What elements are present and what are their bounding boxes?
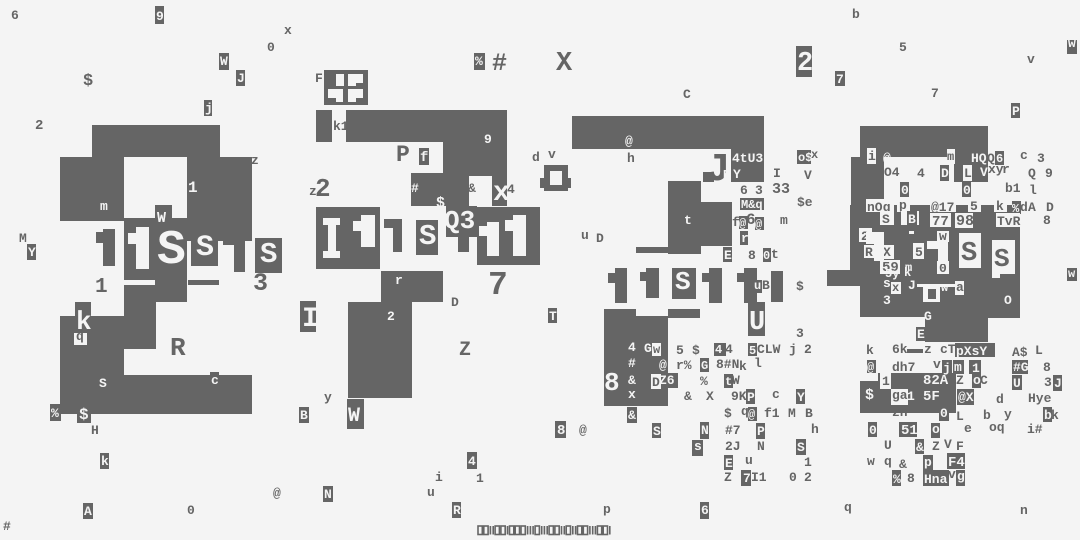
svg-text:%: % xyxy=(893,472,901,487)
svg-text:u: u xyxy=(745,453,753,468)
svg-text:E: E xyxy=(917,327,925,342)
svg-text:i: i xyxy=(868,149,876,164)
svg-text:w: w xyxy=(1068,267,1076,281)
svg-text:q: q xyxy=(844,500,852,515)
svg-text:W: W xyxy=(348,405,360,428)
svg-text:x: x xyxy=(628,387,636,402)
svg-text:x: x xyxy=(284,23,292,38)
svg-text:E: E xyxy=(724,248,732,263)
svg-text:y: y xyxy=(324,390,332,405)
svg-text:1: 1 xyxy=(882,374,890,389)
svg-text:$e: $e xyxy=(797,195,813,210)
svg-text:r: r xyxy=(395,273,403,288)
svg-text:0: 0 xyxy=(267,40,275,55)
svg-text:C: C xyxy=(980,373,988,388)
svg-text:2: 2 xyxy=(387,309,395,324)
svg-text:F: F xyxy=(956,439,964,454)
svg-text:t: t xyxy=(684,213,692,228)
svg-text:9: 9 xyxy=(1045,166,1053,181)
svg-text:51: 51 xyxy=(901,423,918,439)
svg-text:v: v xyxy=(948,467,956,482)
svg-text:@: @ xyxy=(625,134,633,149)
svg-text:V: V xyxy=(944,437,952,452)
svg-text:M: M xyxy=(788,406,796,421)
svg-text:u: u xyxy=(581,228,589,243)
svg-text:6k: 6k xyxy=(892,342,908,357)
svg-text:L: L xyxy=(964,166,972,181)
svg-text:#: # xyxy=(411,181,419,196)
svg-text:S: S xyxy=(653,424,661,439)
svg-text:R: R xyxy=(170,333,186,363)
svg-text:@: @ xyxy=(579,423,587,438)
svg-text:@: @ xyxy=(273,486,281,501)
svg-text:v: v xyxy=(1027,52,1035,67)
svg-text:d: d xyxy=(1020,200,1028,215)
svg-text:0: 0 xyxy=(869,423,877,438)
svg-text:%: % xyxy=(475,54,483,69)
svg-text:4: 4 xyxy=(468,454,476,469)
svg-text:M&q: M&q xyxy=(741,198,763,212)
svg-text:e: e xyxy=(964,421,972,436)
svg-text:W: W xyxy=(220,54,228,69)
svg-text:R: R xyxy=(453,503,461,518)
svg-text:R: R xyxy=(865,245,873,260)
svg-text:D: D xyxy=(941,166,949,181)
svg-text:Z: Z xyxy=(932,439,940,454)
svg-text:i#: i# xyxy=(1027,422,1043,437)
svg-text:5: 5 xyxy=(970,199,978,214)
svg-text:6: 6 xyxy=(701,503,709,518)
svg-text:8: 8 xyxy=(604,368,620,398)
svg-text:Z6: Z6 xyxy=(659,373,675,388)
svg-text:3: 3 xyxy=(883,293,891,308)
svg-text:S: S xyxy=(882,212,890,227)
svg-text:9K: 9K xyxy=(731,389,747,404)
svg-text:0: 0 xyxy=(963,183,971,198)
svg-text:3: 3 xyxy=(253,269,268,298)
svg-text:6: 6 xyxy=(740,183,748,198)
svg-text:J: J xyxy=(908,278,916,293)
svg-text:5: 5 xyxy=(915,245,923,260)
svg-text:0: 0 xyxy=(187,503,195,518)
svg-text:H: H xyxy=(91,423,99,438)
svg-text:L: L xyxy=(1035,343,1043,358)
svg-text:@17: @17 xyxy=(931,200,954,215)
svg-text:1: 1 xyxy=(95,276,108,299)
svg-text:&: & xyxy=(899,457,907,472)
svg-text:L: L xyxy=(956,409,964,424)
svg-text:I1: I1 xyxy=(751,470,767,485)
svg-text:5: 5 xyxy=(899,40,907,55)
svg-text:pXsY: pXsY xyxy=(956,344,987,359)
svg-text:S: S xyxy=(419,220,436,253)
svg-text:m: m xyxy=(780,213,788,228)
svg-text:9: 9 xyxy=(484,132,492,147)
svg-text:8: 8 xyxy=(1043,213,1051,228)
svg-text:8: 8 xyxy=(1043,360,1051,375)
svg-text:8#N: 8#N xyxy=(716,357,739,372)
svg-text:b: b xyxy=(852,7,860,22)
svg-text:Y: Y xyxy=(797,390,805,405)
svg-text:c: c xyxy=(1020,148,1028,163)
svg-text:r: r xyxy=(1002,162,1010,177)
svg-text:D: D xyxy=(451,295,459,310)
svg-text:S: S xyxy=(675,267,691,297)
svg-text:k: k xyxy=(996,199,1004,214)
svg-text:oq: oq xyxy=(989,420,1005,435)
svg-text:I: I xyxy=(302,304,319,335)
svg-text:0: 0 xyxy=(789,470,797,485)
svg-text:S: S xyxy=(157,224,186,278)
svg-text:j: j xyxy=(789,342,797,357)
svg-text:@: @ xyxy=(748,408,755,422)
svg-text:8: 8 xyxy=(557,423,565,439)
svg-text:a: a xyxy=(956,280,964,295)
svg-text:N: N xyxy=(701,423,709,438)
svg-text:2J: 2J xyxy=(725,439,741,454)
svg-text:@: @ xyxy=(883,151,891,166)
svg-text:s: s xyxy=(883,276,891,291)
svg-text:v: v xyxy=(933,357,941,372)
svg-text:$: $ xyxy=(83,72,93,91)
svg-text:g: g xyxy=(957,469,965,484)
svg-text:Y: Y xyxy=(733,167,741,182)
svg-text:u: u xyxy=(427,485,435,500)
svg-text:B: B xyxy=(805,406,813,421)
svg-text:4tU3: 4tU3 xyxy=(732,151,763,166)
svg-text:w: w xyxy=(941,281,949,295)
svg-text:f1: f1 xyxy=(764,406,780,421)
svg-text:2: 2 xyxy=(315,174,331,204)
svg-text:ga: ga xyxy=(892,388,908,403)
svg-text:1: 1 xyxy=(804,455,812,470)
svg-text:$: $ xyxy=(724,406,732,421)
svg-text:Hna: Hna xyxy=(924,472,948,487)
svg-text:P: P xyxy=(1012,104,1020,119)
svg-text:1: 1 xyxy=(188,179,198,197)
svg-text:7: 7 xyxy=(743,471,751,486)
svg-text:HQ: HQ xyxy=(971,151,987,166)
svg-text:#: # xyxy=(492,49,507,78)
svg-text:w: w xyxy=(653,343,661,357)
svg-text:&: & xyxy=(468,181,476,196)
svg-text:Q3: Q3 xyxy=(444,206,475,236)
svg-text:$: $ xyxy=(79,406,89,424)
svg-text:S: S xyxy=(99,376,107,391)
svg-text:S: S xyxy=(961,239,977,269)
svg-text:82A: 82A xyxy=(923,373,949,389)
svg-text:TvR: TvR xyxy=(997,214,1021,229)
svg-text:n: n xyxy=(1020,503,1028,518)
svg-text:B: B xyxy=(300,408,308,423)
svg-text:M: M xyxy=(19,231,27,246)
svg-text:%: % xyxy=(700,374,708,389)
svg-text:U: U xyxy=(1013,376,1021,391)
svg-text:98: 98 xyxy=(956,213,974,230)
svg-text:$: $ xyxy=(865,387,874,404)
svg-text:#: # xyxy=(3,519,11,534)
svg-text:x: x xyxy=(811,148,818,162)
svg-text:U: U xyxy=(749,308,765,338)
svg-text:r: r xyxy=(741,231,749,246)
svg-text:0: 0 xyxy=(940,406,948,421)
svg-text:N: N xyxy=(324,487,332,502)
svg-text:#7: #7 xyxy=(725,423,741,438)
svg-text:2: 2 xyxy=(797,49,813,79)
svg-text:X: X xyxy=(556,49,573,79)
svg-text:h: h xyxy=(811,422,819,437)
svg-text:4: 4 xyxy=(628,340,636,355)
svg-text:77: 77 xyxy=(932,214,949,230)
svg-text:@: @ xyxy=(755,218,762,232)
svg-text:O4: O4 xyxy=(884,165,900,180)
svg-text:Hye: Hye xyxy=(1028,391,1052,406)
svg-text:B: B xyxy=(762,278,770,293)
svg-text:w: w xyxy=(867,454,875,469)
svg-text:9: 9 xyxy=(156,9,164,24)
svg-text:@: @ xyxy=(659,358,667,373)
svg-text:u: u xyxy=(754,279,761,293)
svg-text:0: 0 xyxy=(901,183,909,198)
svg-text:5F: 5F xyxy=(923,389,940,405)
svg-text:P: P xyxy=(757,424,765,439)
svg-text:h: h xyxy=(627,151,635,166)
svg-text:$: $ xyxy=(692,343,700,358)
svg-text:@: @ xyxy=(867,361,874,375)
svg-text:4: 4 xyxy=(725,342,733,357)
svg-text:x: x xyxy=(892,281,899,295)
svg-text:O: O xyxy=(1004,293,1012,308)
svg-text:&: & xyxy=(916,440,924,455)
svg-text:i: i xyxy=(435,470,443,485)
svg-text:b1: b1 xyxy=(1005,181,1021,196)
svg-text:k: k xyxy=(101,454,109,469)
svg-text:2: 2 xyxy=(804,342,812,357)
svg-text:q: q xyxy=(884,454,892,469)
svg-text:7: 7 xyxy=(488,267,508,304)
svg-text:G: G xyxy=(924,309,932,324)
svg-text:d: d xyxy=(532,150,540,165)
svg-text:l: l xyxy=(1029,183,1037,198)
svg-text:&: & xyxy=(628,373,636,388)
svg-text:Q: Q xyxy=(1028,166,1036,181)
svg-text:G: G xyxy=(644,341,652,356)
svg-text:z: z xyxy=(924,342,932,357)
svg-text:X: X xyxy=(706,389,714,404)
svg-text:U: U xyxy=(884,438,892,453)
svg-text:D: D xyxy=(596,231,604,246)
svg-text:P: P xyxy=(396,142,410,168)
svg-text:dh7: dh7 xyxy=(892,360,915,375)
svg-text:z: z xyxy=(251,153,259,168)
svg-text:3: 3 xyxy=(755,183,763,198)
svg-text:p: p xyxy=(603,502,611,517)
svg-text:Z: Z xyxy=(459,339,471,362)
svg-text:B: B xyxy=(908,212,916,227)
svg-text:7: 7 xyxy=(931,86,939,101)
svg-text:I: I xyxy=(773,166,781,181)
svg-text:G: G xyxy=(701,359,708,373)
svg-text:V: V xyxy=(980,165,988,180)
svg-text:C: C xyxy=(683,87,691,102)
svg-text:$: $ xyxy=(796,279,804,294)
svg-text:3: 3 xyxy=(796,326,804,341)
svg-text:33: 33 xyxy=(772,181,790,198)
svg-text:k: k xyxy=(866,343,874,358)
svg-text:2: 2 xyxy=(35,118,43,134)
svg-text:E: E xyxy=(723,168,730,182)
svg-text:f: f xyxy=(420,150,428,166)
svg-text:4: 4 xyxy=(917,166,925,181)
svg-text:4: 4 xyxy=(715,343,722,357)
svg-text:CLW: CLW xyxy=(757,342,781,357)
svg-text:7: 7 xyxy=(836,72,844,87)
svg-text:Z: Z xyxy=(724,470,732,485)
svg-text:1: 1 xyxy=(907,389,915,404)
svg-text:q: q xyxy=(76,329,84,344)
svg-text:3: 3 xyxy=(1037,151,1045,166)
svg-text:F: F xyxy=(315,71,323,86)
svg-text:zn: zn xyxy=(892,405,908,420)
svg-text:8: 8 xyxy=(907,471,915,486)
svg-text:y: y xyxy=(1004,407,1012,422)
svg-text:5: 5 xyxy=(676,343,684,358)
svg-text:s: s xyxy=(694,439,702,454)
svg-text:J: J xyxy=(237,71,245,86)
svg-text:P: P xyxy=(747,390,755,405)
svg-text:&: & xyxy=(628,408,636,423)
svg-text:%: % xyxy=(51,406,59,421)
svg-text:v: v xyxy=(548,147,556,162)
svg-text:A: A xyxy=(84,504,92,519)
svg-text:&: & xyxy=(684,389,692,404)
svg-text:2: 2 xyxy=(804,470,812,485)
svg-text:W: W xyxy=(732,373,740,388)
svg-text:w: w xyxy=(1068,36,1076,51)
svg-text:l: l xyxy=(754,356,762,371)
svg-text:p: p xyxy=(899,198,907,213)
svg-text:X: X xyxy=(883,245,891,260)
svg-text:o: o xyxy=(932,422,940,437)
svg-text:@X: @X xyxy=(958,390,974,405)
svg-text:4: 4 xyxy=(507,182,515,197)
svg-text:6: 6 xyxy=(11,8,19,23)
svg-text:k1: k1 xyxy=(333,119,349,134)
svg-text:m: m xyxy=(947,150,954,164)
svg-text:k: k xyxy=(739,359,747,374)
svg-text:J: J xyxy=(1054,376,1062,391)
svg-text:#G: #G xyxy=(1013,360,1029,375)
svg-text:S: S xyxy=(797,440,805,455)
svg-text:Y: Y xyxy=(28,245,36,260)
svg-text:cT: cT xyxy=(940,342,956,357)
svg-text:#: # xyxy=(628,356,636,371)
svg-text:m: m xyxy=(100,199,108,214)
svg-text:r%: r% xyxy=(676,358,692,373)
svg-text:8: 8 xyxy=(748,248,756,263)
svg-text:S: S xyxy=(196,231,214,265)
svg-text:c: c xyxy=(211,373,219,388)
svg-text:T: T xyxy=(549,309,557,324)
svg-text:t: t xyxy=(771,247,779,262)
svg-text:p: p xyxy=(924,455,932,470)
svg-text:0: 0 xyxy=(763,249,770,263)
svg-text:N: N xyxy=(757,439,765,454)
svg-text:V: V xyxy=(804,168,812,183)
svg-text:E: E xyxy=(725,456,733,471)
svg-text:c: c xyxy=(772,387,780,402)
svg-text:3: 3 xyxy=(1044,375,1052,390)
svg-text:1: 1 xyxy=(476,471,484,486)
svg-text:A: A xyxy=(1028,200,1036,215)
svg-text:k: k xyxy=(1051,408,1059,423)
svg-text:A$: A$ xyxy=(1012,345,1028,360)
svg-text:S: S xyxy=(260,238,277,271)
svg-text:d: d xyxy=(996,392,1004,407)
svg-text:j: j xyxy=(205,101,213,116)
svg-text:w: w xyxy=(939,229,947,244)
svg-text:Z: Z xyxy=(956,373,964,388)
